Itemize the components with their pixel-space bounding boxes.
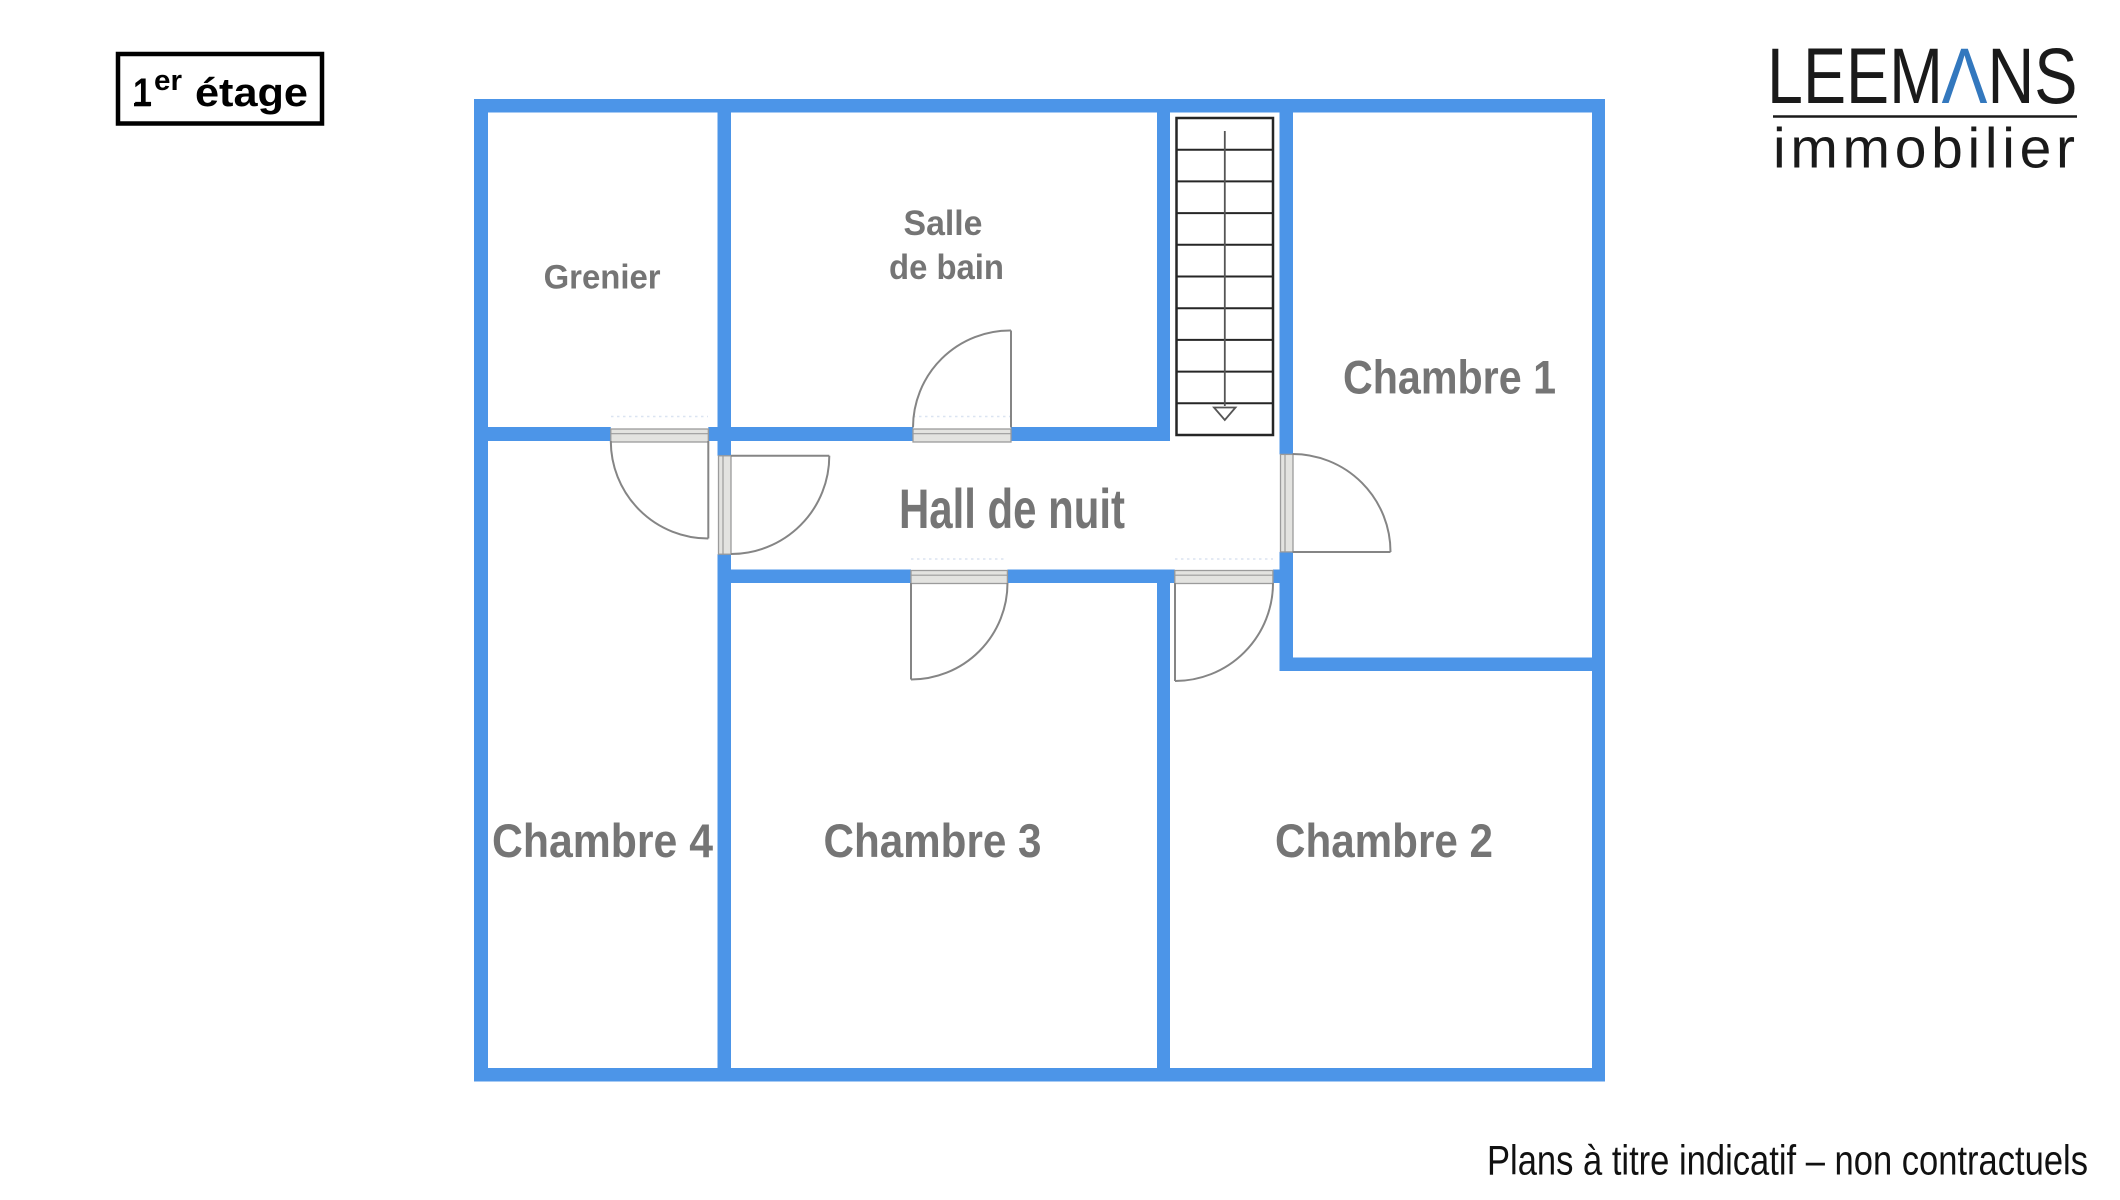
svg-text:Chambre 4: Chambre 4: [492, 814, 713, 867]
svg-text:LEEM: LEEM: [1767, 31, 1943, 120]
svg-text:Λ: Λ: [1942, 31, 1988, 120]
svg-text:Chambre 3: Chambre 3: [824, 814, 1042, 867]
svg-text:immobilier: immobilier: [1773, 117, 2075, 181]
svg-text:Chambre 1: Chambre 1: [1343, 351, 1556, 404]
svg-text:Salle: Salle: [904, 204, 983, 243]
svg-text:1: 1: [133, 71, 152, 115]
svg-text:Hall de nuit: Hall de nuit: [899, 477, 1125, 540]
svg-text:de bain: de bain: [889, 248, 1004, 287]
svg-text:étage: étage: [195, 71, 308, 115]
svg-text:er: er: [154, 65, 182, 97]
svg-text:Plans à titre indicatif – non: Plans à titre indicatif – non contractue…: [1487, 1137, 2088, 1184]
svg-text:Chambre 2: Chambre 2: [1275, 814, 1493, 867]
svg-text:Grenier: Grenier: [544, 259, 661, 297]
svg-text:NS: NS: [1988, 31, 2078, 120]
